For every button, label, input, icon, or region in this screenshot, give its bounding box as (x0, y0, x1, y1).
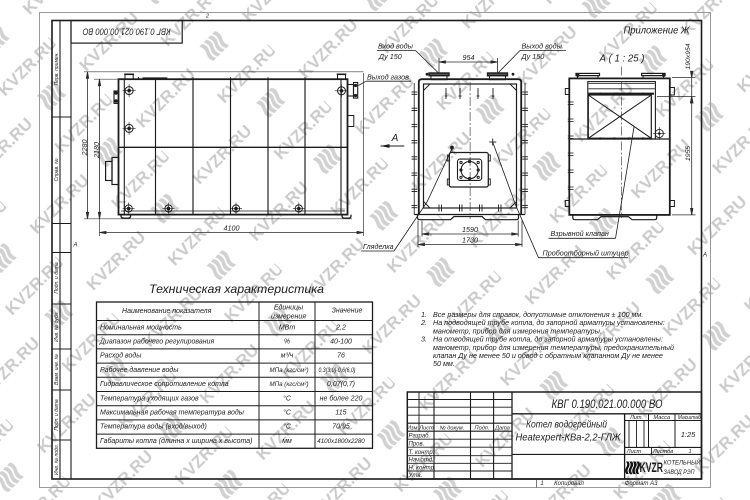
svg-text:Подп. и дата: Подп. и дата (54, 262, 60, 294)
svg-text:Наименование показателя: Наименование показателя (122, 308, 212, 315)
svg-text:0,3(3,0)-0,6(6,0): 0,3(3,0)-0,6(6,0) (319, 368, 356, 374)
svg-text:2.: 2. (420, 318, 427, 327)
svg-text:Изм.: Изм. (407, 425, 419, 431)
svg-text:Инв. № дубл.: Инв. № дубл. (54, 311, 60, 342)
svg-text:Единицы: Единицы (274, 304, 304, 312)
svg-text:Разраб.: Разраб. (409, 434, 431, 440)
svg-text:Максимальная рабочая температу: Максимальная рабочая температура воды (100, 409, 245, 417)
svg-text:МПа (кгс/см²): МПа (кгс/см²) (269, 381, 308, 388)
svg-text:Диапазон рабочего регулировани: Диапазон рабочего регулирования (99, 338, 215, 346)
svg-text:Номинальная мощность: Номинальная мощность (100, 324, 182, 331)
svg-text:Значение: Значение (332, 308, 363, 315)
svg-text:190х954: 190х954 (685, 43, 692, 69)
svg-text:А: А (702, 253, 707, 259)
svg-text:КВГ 0.190.021.00.000 ВО: КВГ 0.190.021.00.000 ВО (82, 25, 170, 36)
svg-text:Нач.отд.: Нач.отд. (409, 458, 434, 464)
svg-text:1:25: 1:25 (681, 430, 696, 439)
svg-text:2280: 2280 (80, 140, 89, 157)
svg-text:Копировал: Копировал (554, 481, 584, 487)
svg-text:954: 954 (463, 53, 475, 62)
svg-text:Габариты котла (длинна х ширин: Габариты котла (длинна х ширина х высота… (100, 437, 253, 445)
svg-text:Инв. № подл.: Инв. № подл. (54, 444, 60, 475)
svg-text:1: 1 (688, 449, 691, 455)
svg-text:Формат А3: Формат А3 (625, 481, 658, 487)
svg-text:КВГ 0.190.021.00.000 ВО: КВГ 0.190.021.00.000 ВО (552, 399, 663, 411)
svg-text:Выход воды: Выход воды (522, 42, 563, 51)
svg-text:Температура уходящих газов: Температура уходящих газов (100, 394, 199, 402)
svg-text:Дата: Дата (494, 425, 510, 431)
svg-text:А ( 1 : 25 ): А ( 1 : 25 ) (599, 53, 645, 65)
svg-text:40-100: 40-100 (330, 339, 352, 346)
svg-text:измерения: измерения (271, 313, 306, 320)
svg-text:Перв. примен.: Перв. примен. (54, 52, 60, 85)
svg-text:°С: °С (283, 409, 292, 417)
svg-text:1590: 1590 (462, 225, 478, 234)
svg-text:Расход воды: Расход воды (100, 352, 142, 360)
svg-text:%: % (284, 339, 290, 346)
svg-text:А: А (391, 133, 399, 144)
svg-text:А: А (72, 243, 77, 249)
svg-text:КОТЕЛЬНЫЙ: КОТЕЛЬНЫЙ (664, 458, 701, 467)
svg-text:Подп.: Подп. (475, 425, 490, 431)
svg-text:м³/ч: м³/ч (281, 353, 294, 360)
svg-text:Лист: Лист (626, 449, 642, 455)
svg-text:Ду 150: Ду 150 (521, 52, 545, 61)
svg-text:Котел водогрейный: Котел водогрейный (526, 419, 607, 431)
svg-text:Справ. №: Справ. № (54, 158, 60, 181)
svg-text:Взрывной клапан: Взрывной клапан (551, 229, 609, 238)
svg-text:Утв.: Утв. (408, 473, 423, 479)
svg-text:ЗАВОД РЭП: ЗАВОД РЭП (664, 469, 695, 476)
svg-text:70/95: 70/95 (332, 424, 350, 431)
svg-text:Масштаб: Масштаб (678, 415, 702, 421)
svg-text:Взам. инв. №: Взам. инв. № (54, 353, 60, 385)
svg-text:1955: 1955 (685, 146, 692, 161)
svg-text:Пров.: Пров. (409, 442, 425, 448)
svg-text:115: 115 (335, 410, 346, 417)
svg-text:Пробоотборный штуцер: Пробоотборный штуцер (543, 249, 629, 258)
svg-text:0,07(0,7): 0,07(0,7) (327, 381, 355, 388)
svg-text:мм: мм (282, 438, 292, 445)
svg-text:№ докум.: № докум. (440, 425, 465, 431)
svg-text:не более 220: не более 220 (320, 394, 363, 402)
svg-text:клапан Ду не менее 50 и обвод: клапан Ду не менее 50 и обвод с обратным… (433, 351, 663, 360)
svg-text:2180: 2180 (92, 142, 101, 159)
svg-text:1730: 1730 (462, 235, 478, 244)
svg-text:Т. контр.: Т. контр. (409, 450, 435, 456)
svg-text:Выход газов: Выход газов (367, 73, 409, 82)
svg-text:4100: 4100 (224, 224, 240, 233)
svg-text:2,2: 2,2 (335, 324, 346, 331)
svg-text:°С: °С (283, 394, 292, 402)
svg-text:Вход воды: Вход воды (378, 42, 414, 51)
svg-text:Приложение Ж: Приложение Ж (624, 25, 691, 37)
svg-text:4100х1800х2280: 4100х1800х2280 (317, 438, 365, 445)
svg-text:76: 76 (337, 353, 345, 360)
svg-text:Рабочее давление воды: Рабочее давление воды (100, 366, 179, 374)
svg-text:Гидравлическое сопротивление к: Гидравлическое сопротивление котла (100, 380, 229, 388)
svg-text:1: 1 (540, 481, 543, 487)
svg-text:Гляделка: Гляделка (363, 242, 394, 251)
svg-text:Лит.: Лит. (629, 415, 643, 421)
svg-text:Heatexpert-КВа-2,2-ГЛЖ: Heatexpert-КВа-2,2-ГЛЖ (516, 432, 622, 444)
svg-text:50 мм.: 50 мм. (433, 359, 455, 368)
svg-text:Подп. и дата: Подп. и дата (54, 399, 60, 431)
svg-text:МПа (кгс/см²): МПа (кгс/см²) (269, 367, 308, 374)
svg-text:Масса: Масса (654, 415, 671, 421)
svg-text:Лист: Лист (418, 425, 434, 431)
svg-text:2: 2 (205, 14, 209, 20)
svg-text:3.: 3. (421, 335, 427, 344)
svg-text:Техническая характеристика: Техническая характеристика (149, 282, 324, 296)
svg-text:°С: °С (283, 423, 292, 431)
svg-text:Температура воды (вход/выход): Температура воды (вход/выход) (100, 423, 207, 431)
svg-text:Листов: Листов (652, 449, 673, 455)
svg-text:Ду 150: Ду 150 (378, 52, 402, 61)
svg-text:KVZR: KVZR (640, 460, 664, 475)
svg-text:МВт: МВт (279, 324, 296, 331)
svg-text:Н. контр.: Н. контр. (409, 465, 436, 471)
